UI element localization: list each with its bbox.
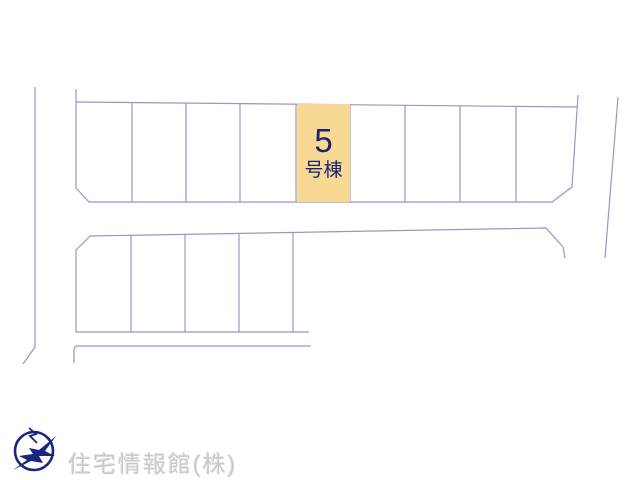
company-name-watermark: 住宅情報館(株): [68, 445, 237, 479]
highlighted-lot-5: 5 号棟: [297, 104, 350, 202]
logo-zigzag: [29, 428, 37, 443]
site-plan-canvas: 5 号棟 住宅情報館(株): [0, 0, 640, 480]
lot-number-suffix: 号棟: [304, 160, 342, 183]
road-line-left: [23, 87, 35, 364]
second-row-top-edge: [76, 228, 565, 258]
company-branding: 住宅情報館(株): [8, 421, 237, 479]
lot-number: 5: [314, 124, 332, 157]
road-line-right: [605, 97, 618, 258]
bird-in-circle-icon: [8, 422, 60, 478]
lot-map: [0, 0, 640, 480]
lot-block-second-row: [76, 228, 565, 332]
road-line-bottom-corner: [74, 346, 311, 363]
second-row-left-bottom-edge: [76, 250, 309, 332]
